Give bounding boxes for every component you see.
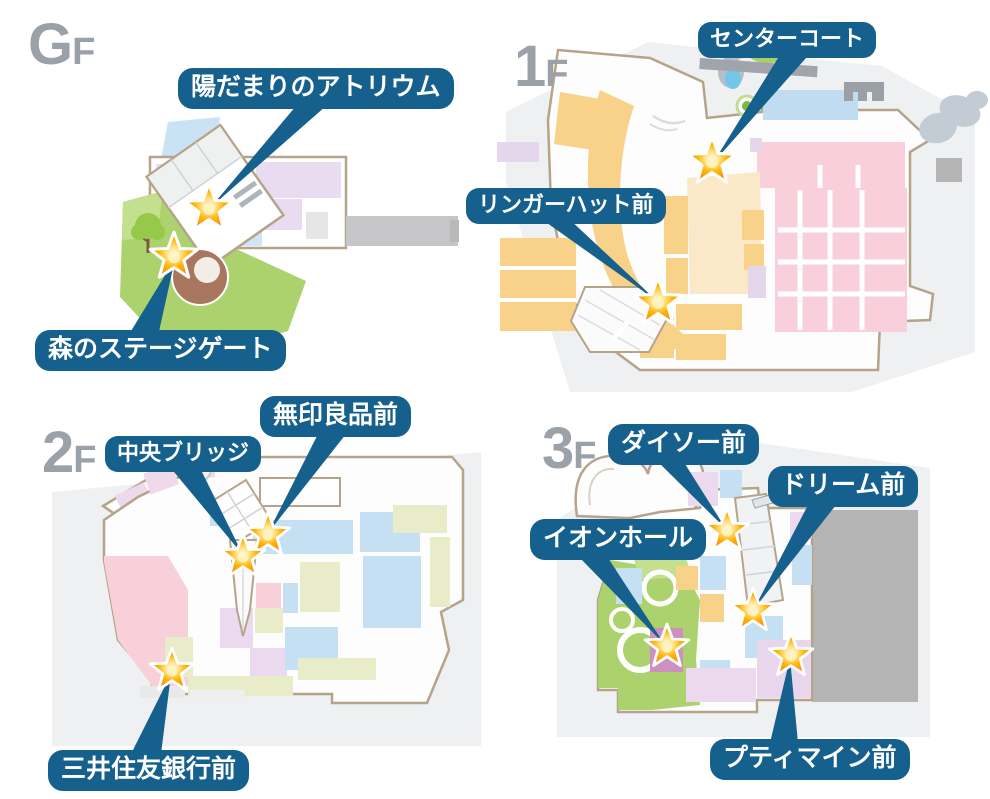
- callout-chuo-bridge[interactable]: 中央ブリッジ: [105, 436, 261, 472]
- 3f-gray-block: [812, 510, 918, 702]
- callout-center-court[interactable]: センターコート: [698, 22, 876, 58]
- callout-muji-mae[interactable]: 無印良品前: [260, 396, 411, 437]
- floor-label-2f-big: 2: [42, 420, 73, 485]
- mall-floor-maps: GF 1F 2F 3F 陽だまりのアトリウム 森のステージゲート センターコート…: [0, 0, 990, 799]
- floor-label-gf: GF: [28, 16, 94, 74]
- callout-dream-mae[interactable]: ドリーム前: [768, 466, 918, 507]
- floor-label-2f-small: F: [73, 439, 95, 481]
- floor-label-3f-big: 3: [542, 416, 573, 481]
- map-2f: [52, 452, 481, 746]
- callout-hidamari-atrium[interactable]: 陽だまりのアトリウム: [178, 68, 454, 109]
- callout-ringer-hut-mae[interactable]: リンガーハット前: [466, 188, 666, 224]
- floor-label-3f: 3F: [542, 420, 595, 478]
- 1f-building-icon: [844, 82, 884, 101]
- callout-mori-stage-gate[interactable]: 森のステージゲート: [35, 330, 286, 371]
- floor-label-1f: 1F: [514, 38, 567, 96]
- callout-smbc-mae[interactable]: 三井住友銀行前: [48, 750, 249, 791]
- map-gf: [120, 117, 459, 347]
- floor-label-2f: 2F: [42, 424, 95, 482]
- floor-label-gf-big: G: [28, 12, 72, 77]
- callout-petit-main-mae[interactable]: プティマイン前: [710, 739, 910, 780]
- floor-label-gf-small: F: [72, 31, 94, 73]
- floor-label-1f-small: F: [545, 53, 567, 95]
- floor-label-3f-small: F: [573, 435, 595, 477]
- callout-aeon-hall[interactable]: イオンホール: [530, 519, 706, 560]
- callout-daiso-mae[interactable]: ダイソー前: [608, 424, 759, 465]
- floor-maps-svg: [0, 0, 990, 799]
- floor-label-1f-big: 1: [514, 34, 545, 99]
